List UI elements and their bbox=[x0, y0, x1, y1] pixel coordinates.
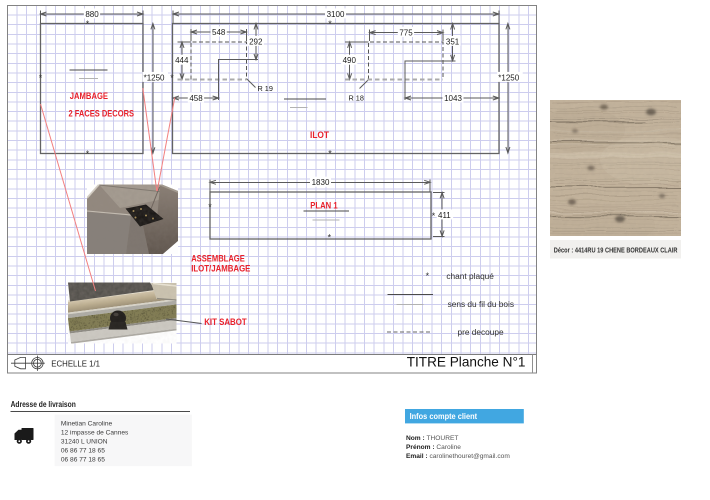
svg-text:ILOT/JAMBAGE: ILOT/JAMBAGE bbox=[191, 263, 250, 273]
svg-text:12 impasse de Cannes: 12 impasse de Cannes bbox=[61, 430, 129, 437]
svg-text:*: * bbox=[208, 202, 212, 212]
svg-text:2 FACES DECORS: 2 FACES DECORS bbox=[69, 109, 135, 119]
svg-text:R 19: R 19 bbox=[258, 84, 273, 93]
svg-text:411: 411 bbox=[438, 211, 451, 220]
svg-text:chant plaqué: chant plaqué bbox=[446, 271, 494, 281]
svg-text:444: 444 bbox=[175, 56, 189, 65]
svg-text:351: 351 bbox=[446, 37, 460, 46]
svg-text:ASSEMBLAGE: ASSEMBLAGE bbox=[191, 253, 245, 263]
svg-text:ECHELLE 1/1: ECHELLE 1/1 bbox=[51, 359, 100, 369]
svg-text:*1250: *1250 bbox=[144, 73, 165, 82]
svg-text:ILOT: ILOT bbox=[310, 130, 330, 140]
svg-text:1043: 1043 bbox=[444, 94, 462, 103]
svg-text:06 86 77 18 65: 06 86 77 18 65 bbox=[61, 456, 105, 463]
svg-text:548: 548 bbox=[212, 28, 226, 37]
svg-text:3100: 3100 bbox=[327, 10, 345, 19]
svg-text:KIT SABOT: KIT SABOT bbox=[204, 317, 247, 327]
svg-text:775: 775 bbox=[399, 29, 413, 38]
svg-text:Infos compte client: Infos compte client bbox=[410, 412, 478, 421]
svg-text:*: * bbox=[328, 149, 332, 159]
svg-text:880: 880 bbox=[85, 10, 99, 19]
svg-text:*: * bbox=[170, 73, 174, 83]
svg-text:PLAN 1: PLAN 1 bbox=[310, 201, 337, 211]
svg-text:Adresse de livraison: Adresse de livraison bbox=[11, 400, 76, 409]
svg-text:Minetian Caroline: Minetian Caroline bbox=[61, 421, 113, 428]
svg-text:*: * bbox=[86, 19, 90, 29]
svg-text:Décor : 4414RU 19 CHENE BORDEA: Décor : 4414RU 19 CHENE BORDEAUX CLAIR bbox=[554, 246, 678, 255]
svg-text:31240 L UNION: 31240 L UNION bbox=[61, 439, 108, 446]
svg-text:1830: 1830 bbox=[312, 178, 330, 187]
svg-text:sens du fil du bois: sens du fil du bois bbox=[448, 299, 514, 309]
svg-text:06 86 77 18 65: 06 86 77 18 65 bbox=[61, 447, 105, 454]
svg-text:*: * bbox=[432, 211, 436, 221]
svg-text:*: * bbox=[39, 73, 43, 83]
svg-text:*1250: *1250 bbox=[498, 73, 519, 82]
svg-text:*: * bbox=[426, 271, 430, 281]
svg-text:292: 292 bbox=[249, 37, 263, 46]
svg-text:*: * bbox=[328, 19, 332, 29]
svg-text:*: * bbox=[86, 149, 90, 159]
svg-text:JAMBAGE: JAMBAGE bbox=[70, 91, 108, 101]
svg-text:pre decoupe: pre decoupe bbox=[458, 327, 505, 337]
svg-text:TITRE Planche N°1: TITRE Planche N°1 bbox=[407, 354, 526, 369]
svg-text:458: 458 bbox=[189, 94, 203, 103]
svg-text:490: 490 bbox=[343, 56, 357, 65]
svg-text:*: * bbox=[328, 232, 332, 242]
svg-text:Prénom : Caroline: Prénom : Caroline bbox=[406, 444, 461, 451]
svg-text:Email : carolinethouret@gmail.: Email : carolinethouret@gmail.com bbox=[406, 453, 510, 460]
svg-text:Nom : THOURET: Nom : THOURET bbox=[406, 435, 458, 442]
svg-text:R 18: R 18 bbox=[349, 94, 364, 103]
